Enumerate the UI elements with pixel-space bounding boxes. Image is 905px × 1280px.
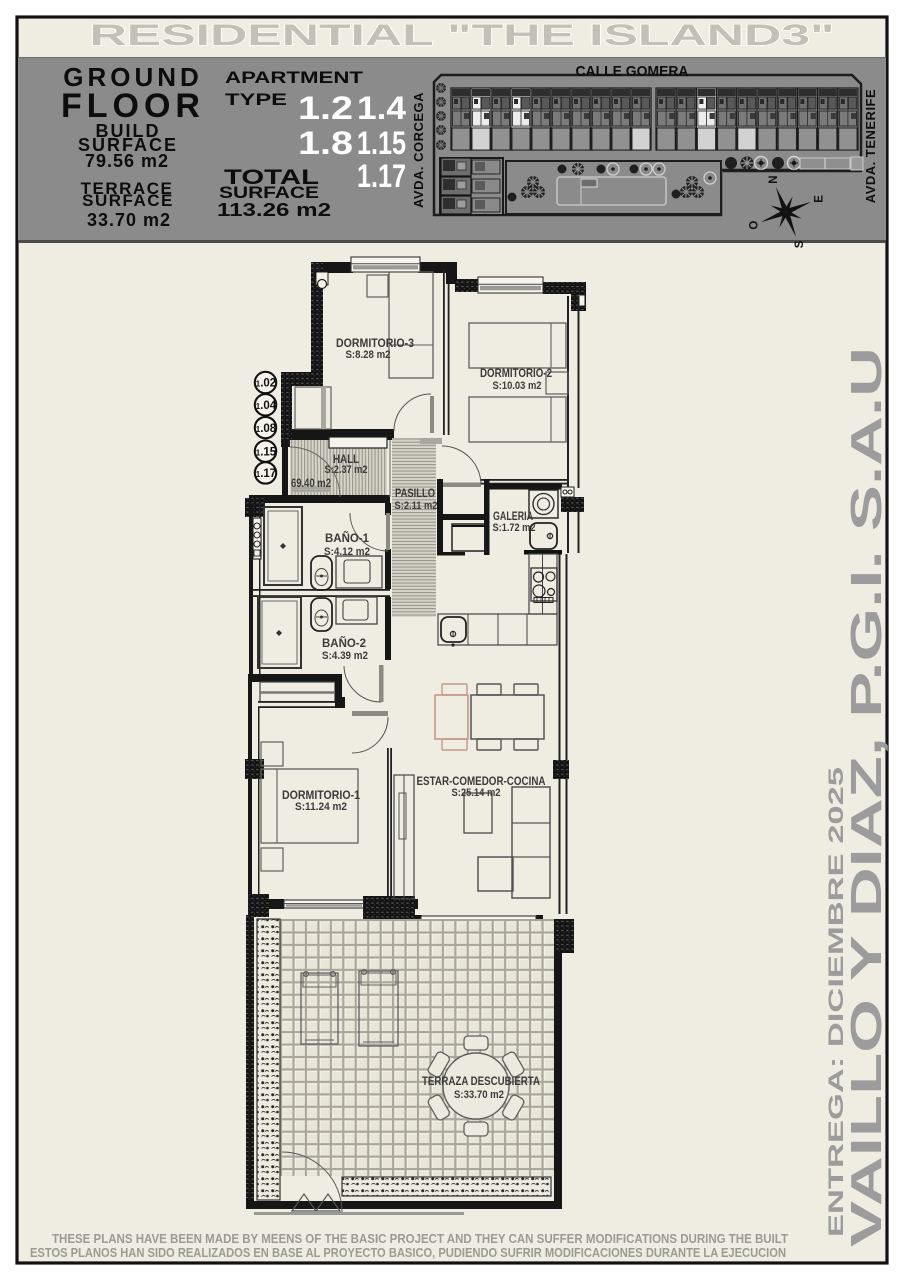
svg-text:S:4.12 m2: S:4.12 m2 — [324, 546, 370, 558]
svg-text:S:25.14 m2: S:25.14 m2 — [452, 787, 501, 799]
svg-text:O: O — [749, 221, 761, 230]
svg-text:1.4: 1.4 — [357, 90, 406, 126]
svg-text:AVDA. CORCEGA: AVDA. CORCEGA — [411, 92, 426, 208]
svg-text:E: E — [813, 195, 825, 203]
svg-text:1.04: 1.04 — [256, 400, 277, 412]
svg-text:79.56 m2: 79.56 m2 — [85, 151, 169, 171]
svg-text:N: N — [768, 175, 780, 183]
svg-text:AVDA. TENERIFE: AVDA. TENERIFE — [863, 89, 878, 203]
svg-text:THESE PLANS HAVE BEEN MADE BY: THESE PLANS HAVE BEEN MADE BY MEENS OF T… — [52, 1232, 788, 1246]
svg-text:PASILLO: PASILLO — [395, 488, 435, 500]
svg-text:S:2.37 m2: S:2.37 m2 — [325, 464, 368, 476]
svg-text:S:11.24 m2: S:11.24 m2 — [295, 801, 347, 813]
svg-text:1.15: 1.15 — [357, 125, 406, 161]
svg-text:DORMITORIO-2: DORMITORIO-2 — [480, 368, 552, 380]
svg-text:CALLE GOMERA: CALLE GOMERA — [576, 63, 689, 80]
svg-text:1.8: 1.8 — [298, 125, 353, 161]
svg-text:ENTREGA: DICIEMBRE 2025: ENTREGA: DICIEMBRE 2025 — [825, 766, 848, 1237]
svg-text:S:33.70 m2: S:33.70 m2 — [454, 1089, 504, 1101]
svg-text:S:2.11 m2: S:2.11 m2 — [395, 500, 438, 512]
svg-text:33.70 m2: 33.70 m2 — [87, 210, 171, 230]
svg-text:BAÑO-2: BAÑO-2 — [322, 637, 366, 650]
svg-text:113.26 m2: 113.26 m2 — [217, 199, 331, 220]
svg-text:FLOOR: FLOOR — [61, 87, 205, 125]
svg-text:VAILLO Y DIAZ, P.G.I. S.A.U: VAILLO Y DIAZ, P.G.I. S.A.U — [842, 347, 891, 1247]
svg-text:1.15: 1.15 — [256, 446, 277, 458]
svg-text:69.40 m2: 69.40 m2 — [291, 478, 331, 490]
svg-text:S: S — [794, 240, 806, 248]
svg-text:RESIDENTIAL "THE ISLAND3": RESIDENTIAL "THE ISLAND3" — [90, 19, 835, 52]
svg-text:1.17: 1.17 — [357, 158, 406, 194]
svg-text:S:1.72 m2: S:1.72 m2 — [493, 522, 536, 534]
svg-text:APARTMENT: APARTMENT — [225, 68, 364, 87]
svg-text:1.08: 1.08 — [256, 423, 277, 435]
svg-text:TYPE: TYPE — [225, 90, 287, 109]
svg-text:1.17: 1.17 — [256, 468, 276, 480]
svg-text:S:8.28 m2: S:8.28 m2 — [346, 349, 391, 361]
svg-text:TERRAZA DESCUBIERTA: TERRAZA DESCUBIERTA — [422, 1076, 540, 1088]
svg-text:ESTOS PLANOS HAN SIDO REALIZAD: ESTOS PLANOS HAN SIDO REALIZADOS EN BASE… — [30, 1246, 786, 1260]
svg-text:SURFACE: SURFACE — [82, 191, 174, 210]
svg-text:BAÑO-1: BAÑO-1 — [325, 532, 370, 545]
svg-text:S:10.03 m2: S:10.03 m2 — [493, 380, 542, 392]
svg-text:S:4.39 m2: S:4.39 m2 — [322, 650, 368, 662]
svg-text:1.02: 1.02 — [256, 378, 276, 390]
svg-text:1.2: 1.2 — [298, 90, 353, 126]
